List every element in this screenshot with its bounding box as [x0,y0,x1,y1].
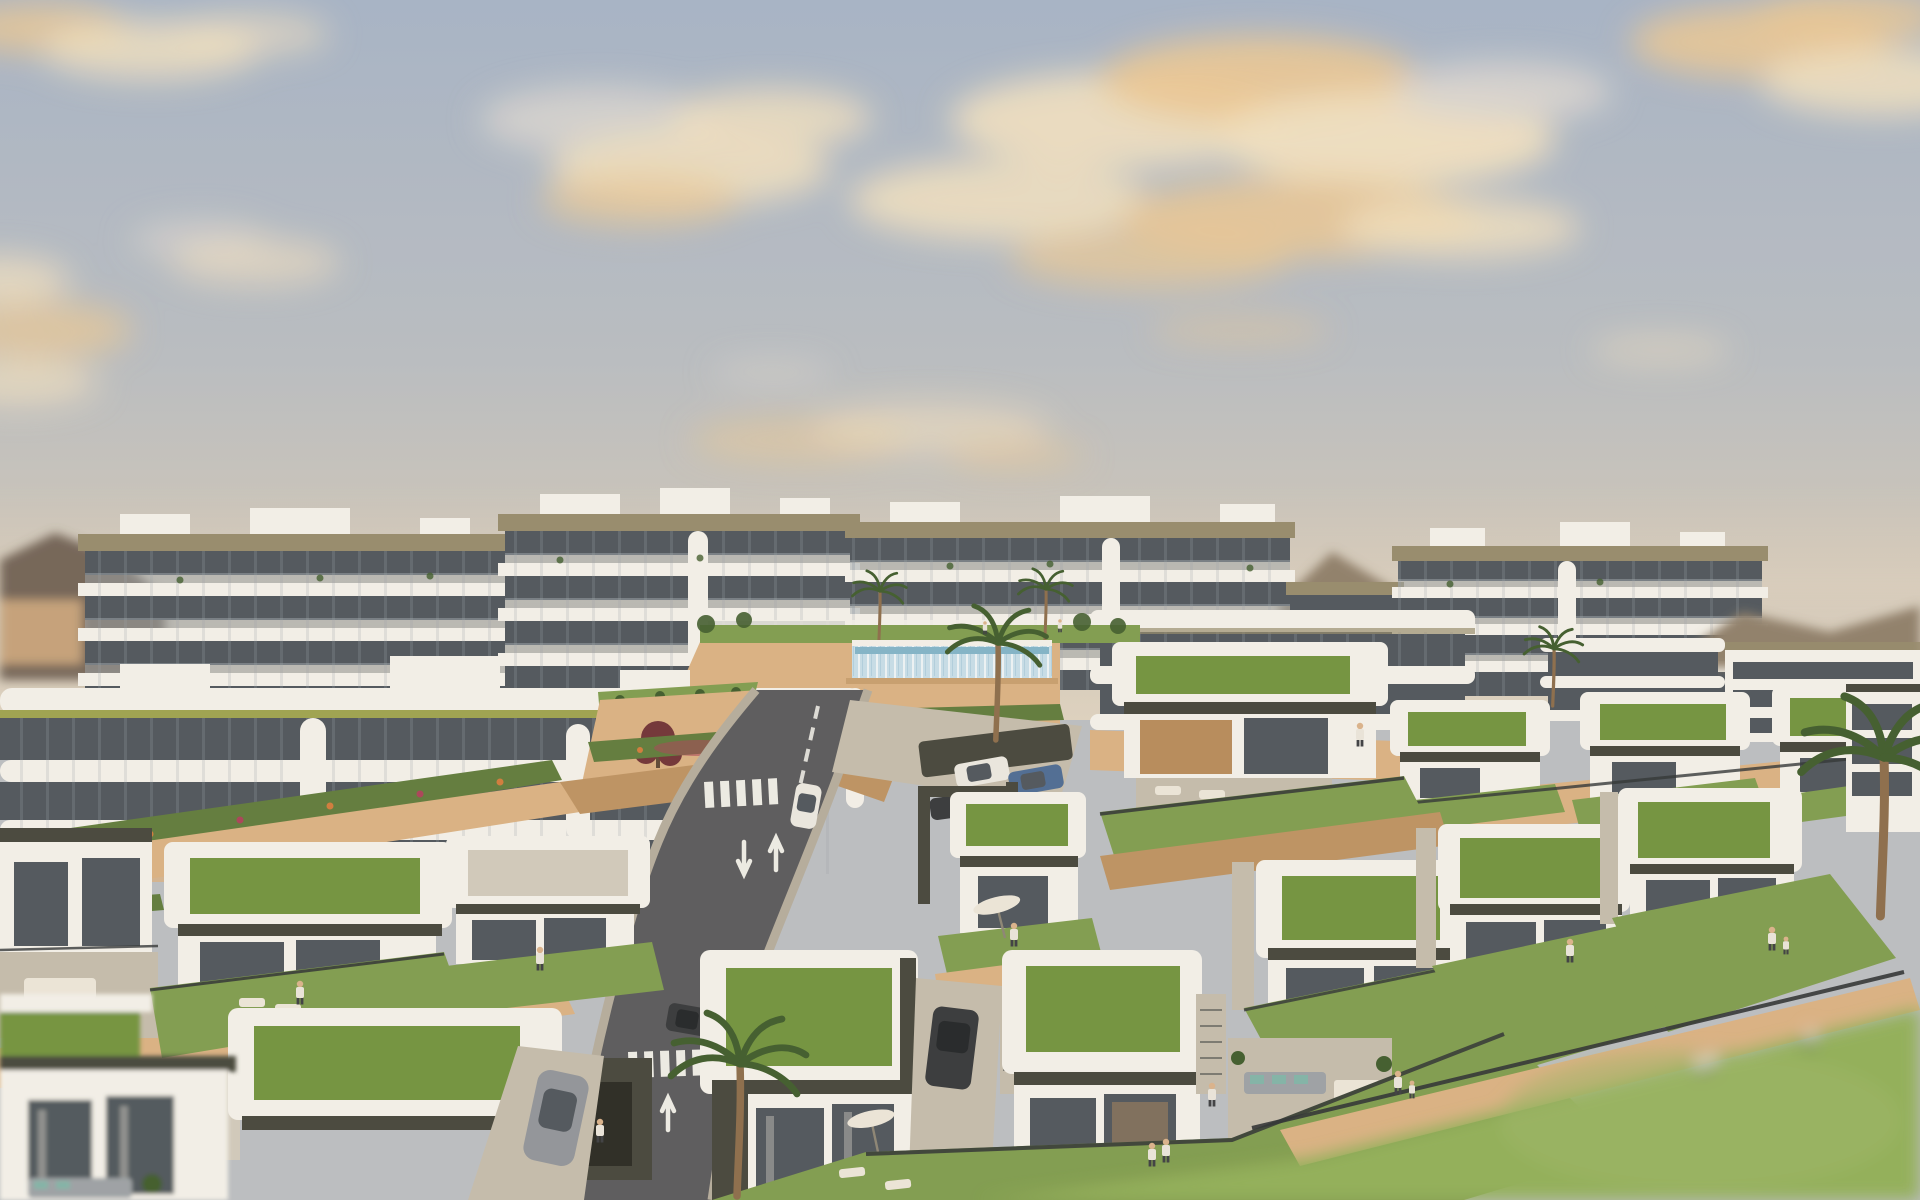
warm-light-overlay [0,0,1920,1200]
architectural-render: Aerial 3D architectural rendering of a h… [0,0,1920,1200]
